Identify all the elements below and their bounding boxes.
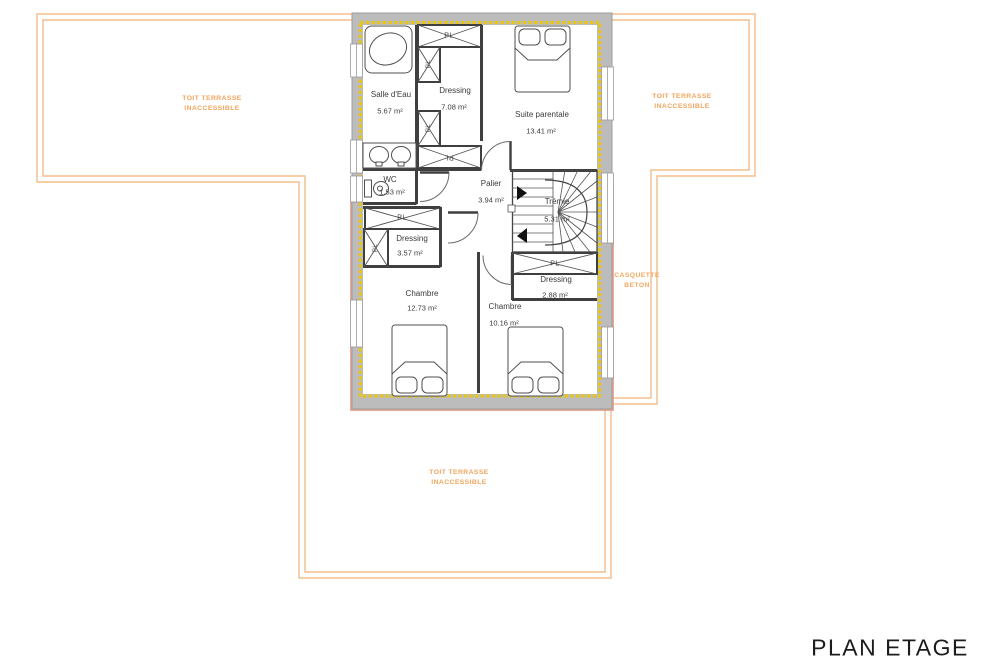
window-left-chambre bbox=[351, 300, 363, 347]
window-right-suite bbox=[602, 67, 614, 120]
stair-newel bbox=[508, 205, 515, 212]
toilet bbox=[365, 180, 389, 197]
window-left-bath bbox=[351, 44, 363, 77]
terrace-right-casquette-inner bbox=[612, 20, 749, 398]
window-right-stairs bbox=[602, 173, 614, 243]
window-left-sink bbox=[351, 140, 363, 173]
bed-suite bbox=[515, 26, 570, 92]
window-left-wc bbox=[351, 176, 363, 202]
terrace-right-casquette-outer bbox=[612, 14, 755, 404]
bed-chambre-ouest bbox=[392, 325, 447, 396]
floor-plan: TOIT TERRASSE INACCESSIBLE TOIT TERRASSE… bbox=[0, 0, 1000, 666]
vanity-double-sink bbox=[363, 143, 416, 168]
bathtub bbox=[365, 26, 412, 73]
bed-chambre-sud bbox=[508, 327, 563, 396]
floor-plan-drawing bbox=[0, 0, 1000, 666]
window-right-chambre bbox=[602, 327, 614, 378]
